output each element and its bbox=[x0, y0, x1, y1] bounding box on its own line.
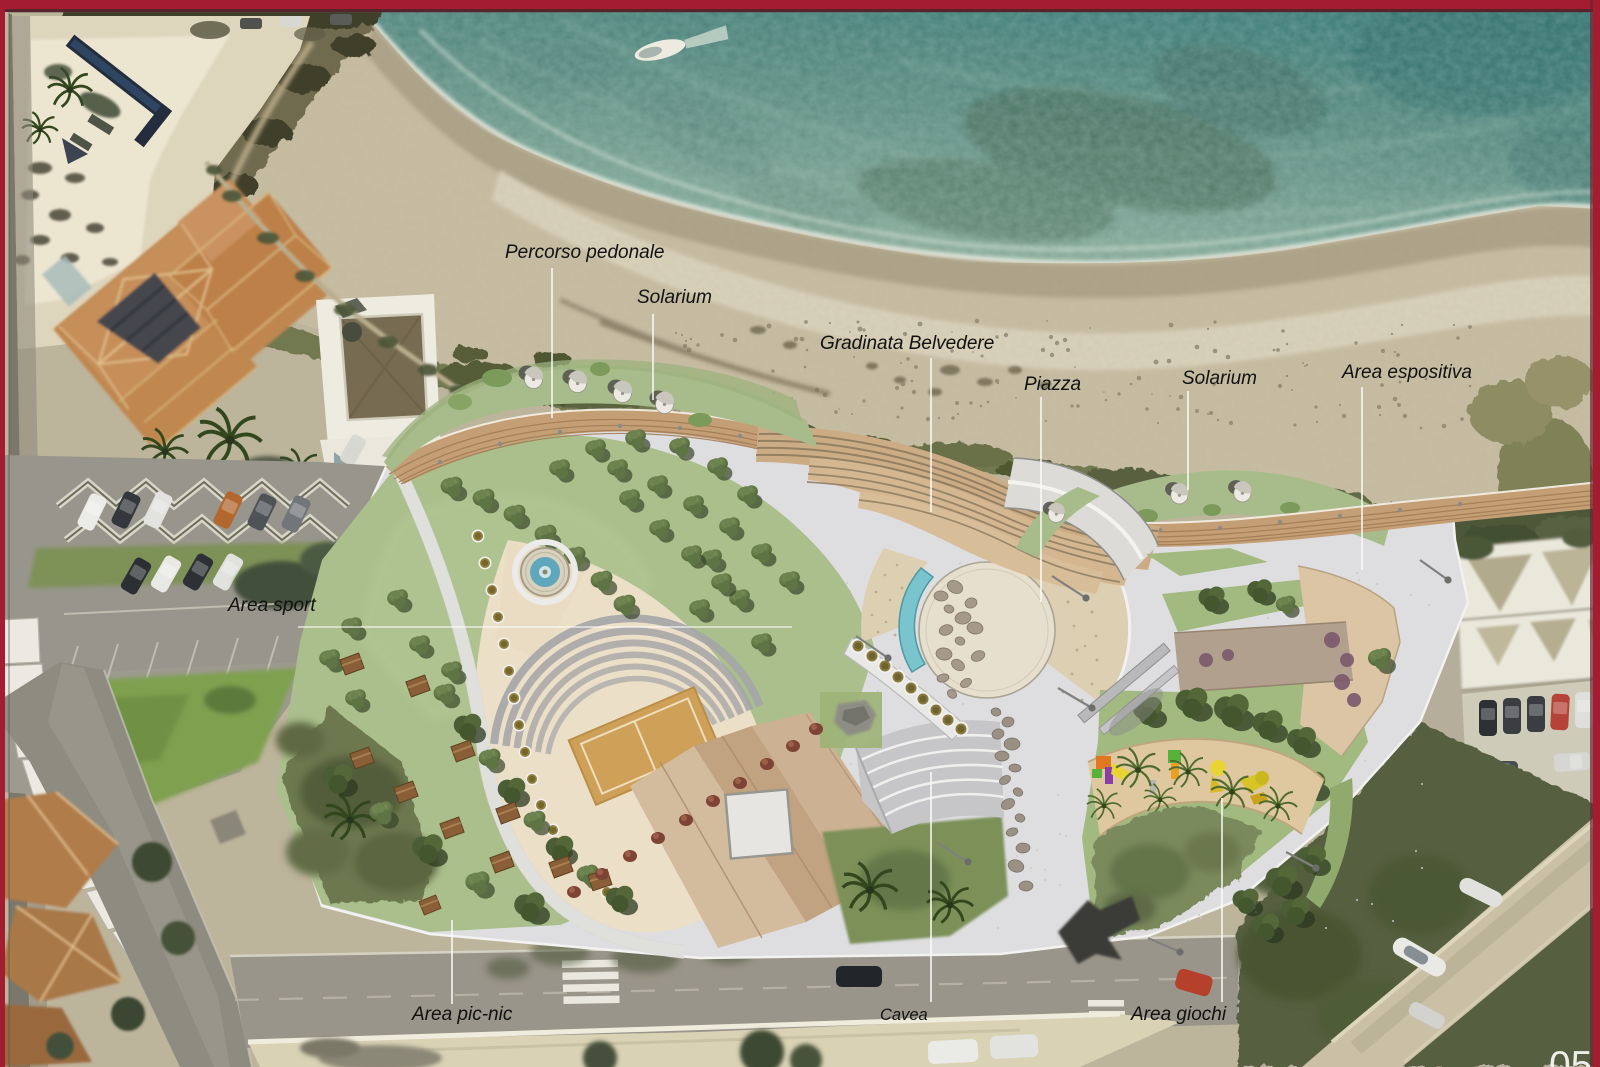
svg-text:Area sport: Area sport bbox=[227, 595, 316, 616]
svg-text:Gradinata Belvedere: Gradinata Belvedere bbox=[820, 333, 994, 354]
svg-text:Area pic-nic: Area pic-nic bbox=[411, 1004, 513, 1025]
svg-text:Area giochi: Area giochi bbox=[1130, 1004, 1227, 1025]
svg-text:Cavea: Cavea bbox=[880, 1006, 928, 1024]
svg-text:Solarium: Solarium bbox=[1182, 368, 1257, 389]
svg-text:05: 05 bbox=[1549, 1044, 1592, 1067]
svg-text:Solarium: Solarium bbox=[637, 287, 712, 308]
svg-text:Area espositiva: Area espositiva bbox=[1341, 362, 1472, 383]
svg-text:Piazza: Piazza bbox=[1024, 374, 1081, 395]
svg-text:Percorso pedonale: Percorso pedonale bbox=[505, 242, 665, 263]
